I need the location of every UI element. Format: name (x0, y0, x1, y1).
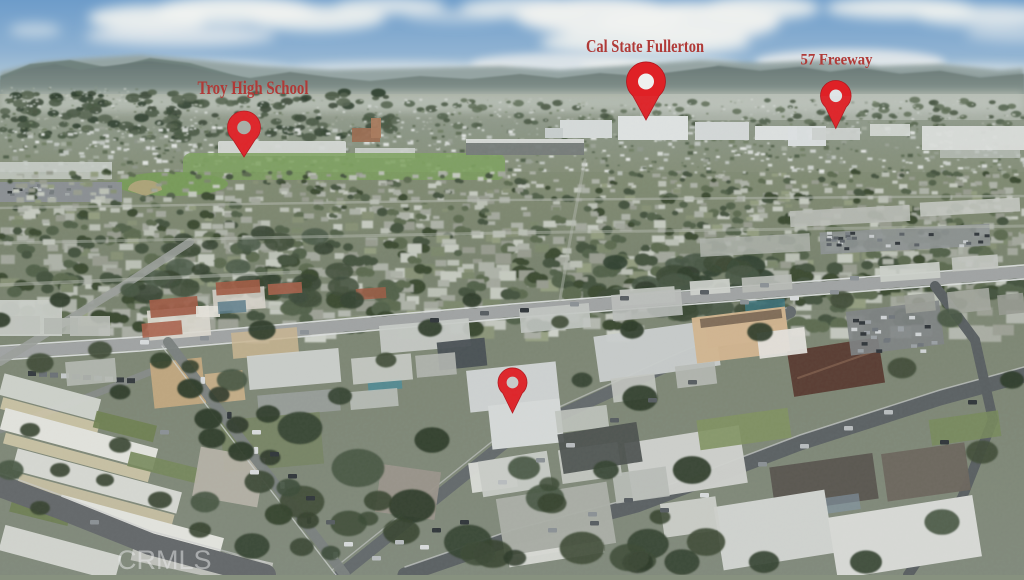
svg-text:57 Freeway: 57 Freeway (801, 52, 873, 69)
svg-text:Cal State Fullerton: Cal State Fullerton (586, 36, 704, 56)
